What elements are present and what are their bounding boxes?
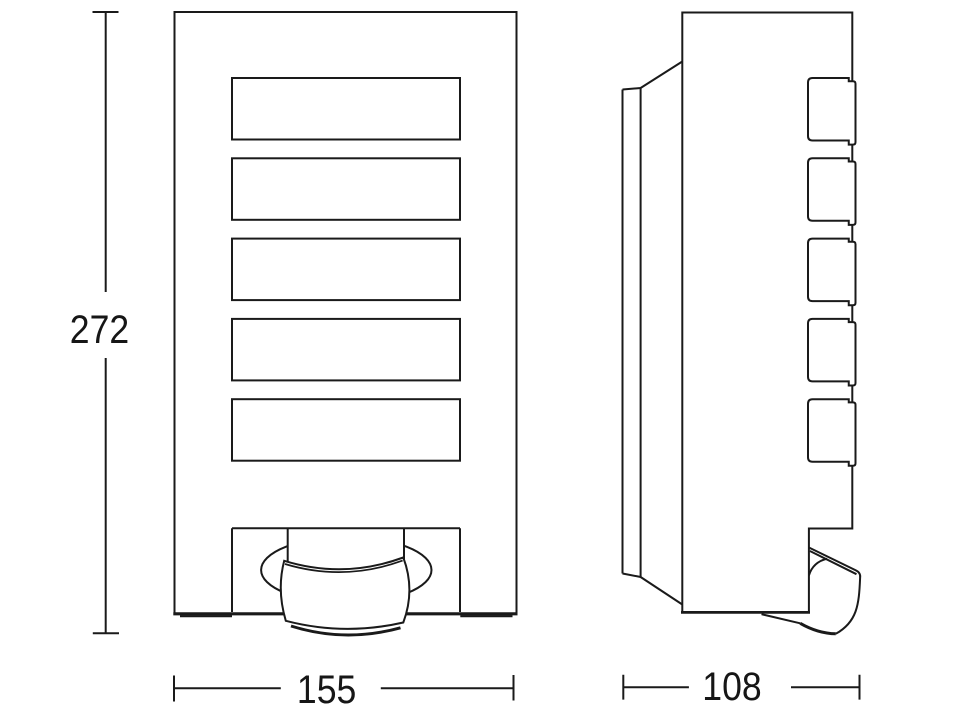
svg-text:155: 155 <box>297 668 356 712</box>
svg-text:108: 108 <box>702 665 761 709</box>
svg-text:272: 272 <box>70 308 129 352</box>
